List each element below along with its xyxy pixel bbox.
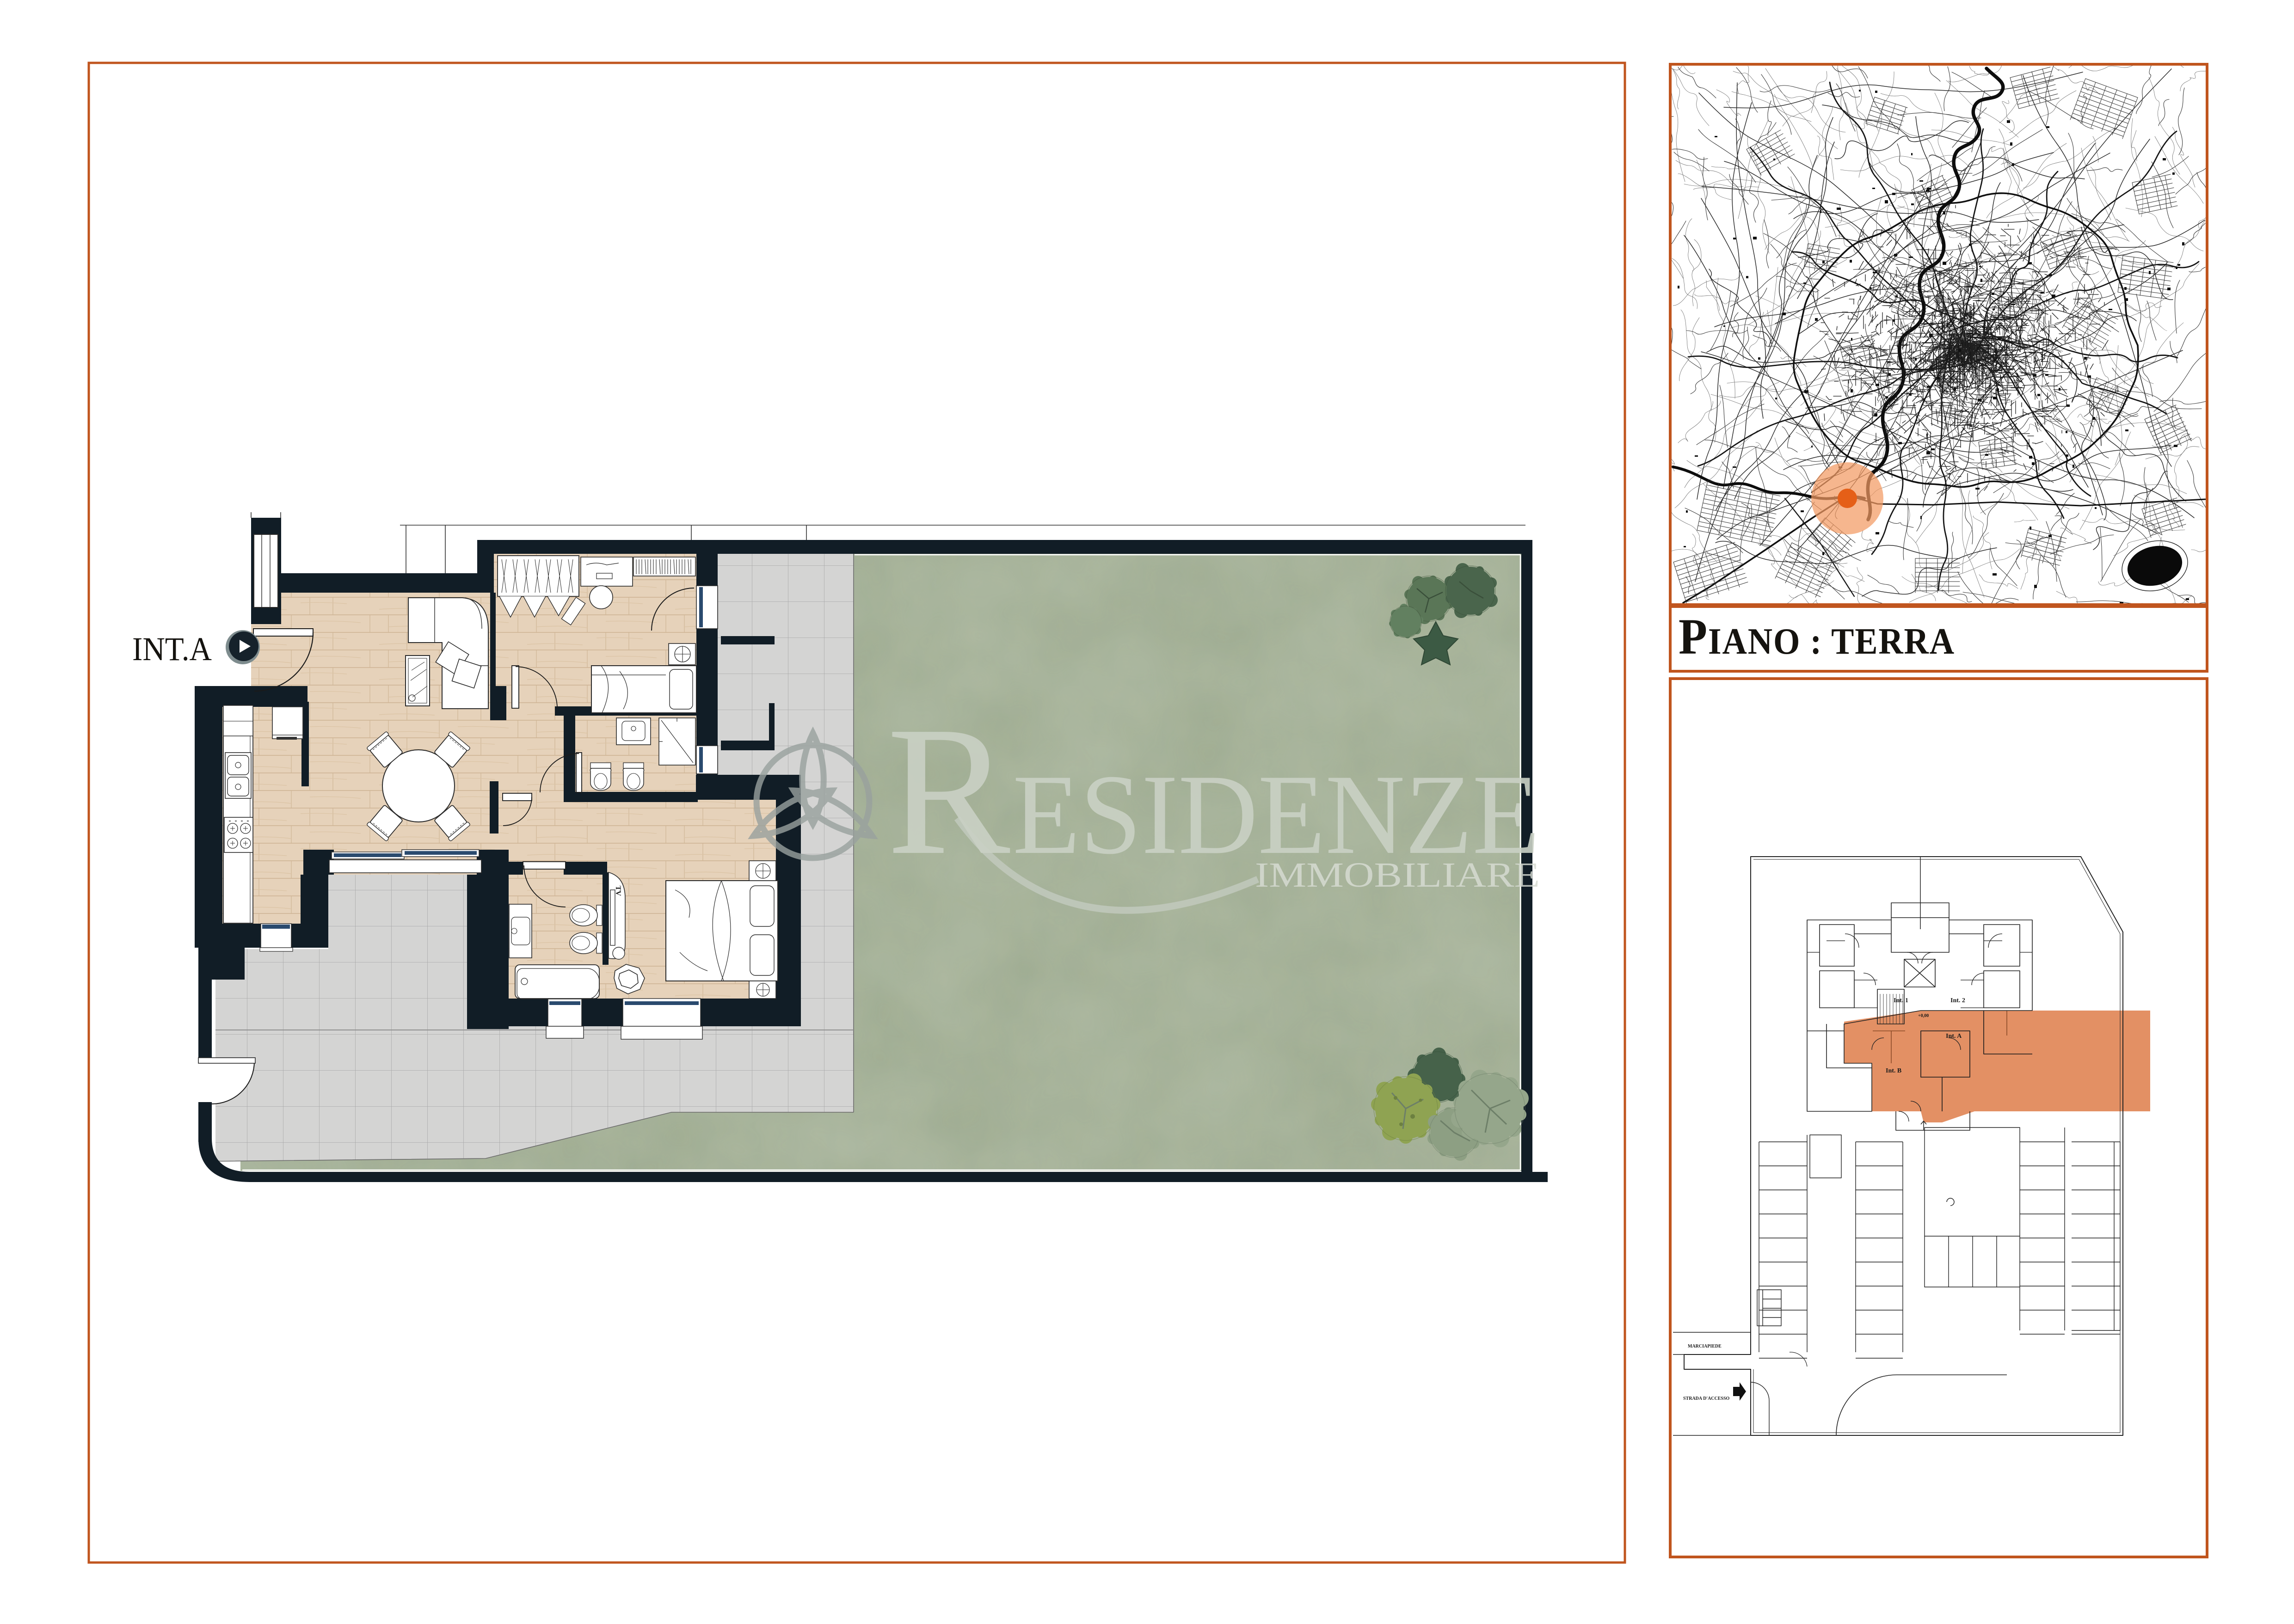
svg-text:Int. A: Int. A (1946, 1033, 1962, 1040)
svg-text:+0,00: +0,00 (1918, 1013, 1929, 1018)
svg-text:MARCIAPIEDE: MARCIAPIEDE (1688, 1344, 1722, 1349)
svg-text:IMMOBILIARE: IMMOBILIARE (1255, 856, 1540, 895)
svg-text:STRADA D'ACCESSO: STRADA D'ACCESSO (1683, 1396, 1730, 1401)
svg-text:R: R (887, 688, 1011, 893)
svg-text:Int. 2: Int. 2 (1950, 997, 1965, 1004)
svg-text:INT.A: INT.A (132, 631, 212, 668)
svg-text:Int. 1: Int. 1 (1894, 997, 1908, 1004)
svg-text:TV: TV (614, 886, 622, 896)
svg-text:Int. B: Int. B (1886, 1067, 1901, 1074)
